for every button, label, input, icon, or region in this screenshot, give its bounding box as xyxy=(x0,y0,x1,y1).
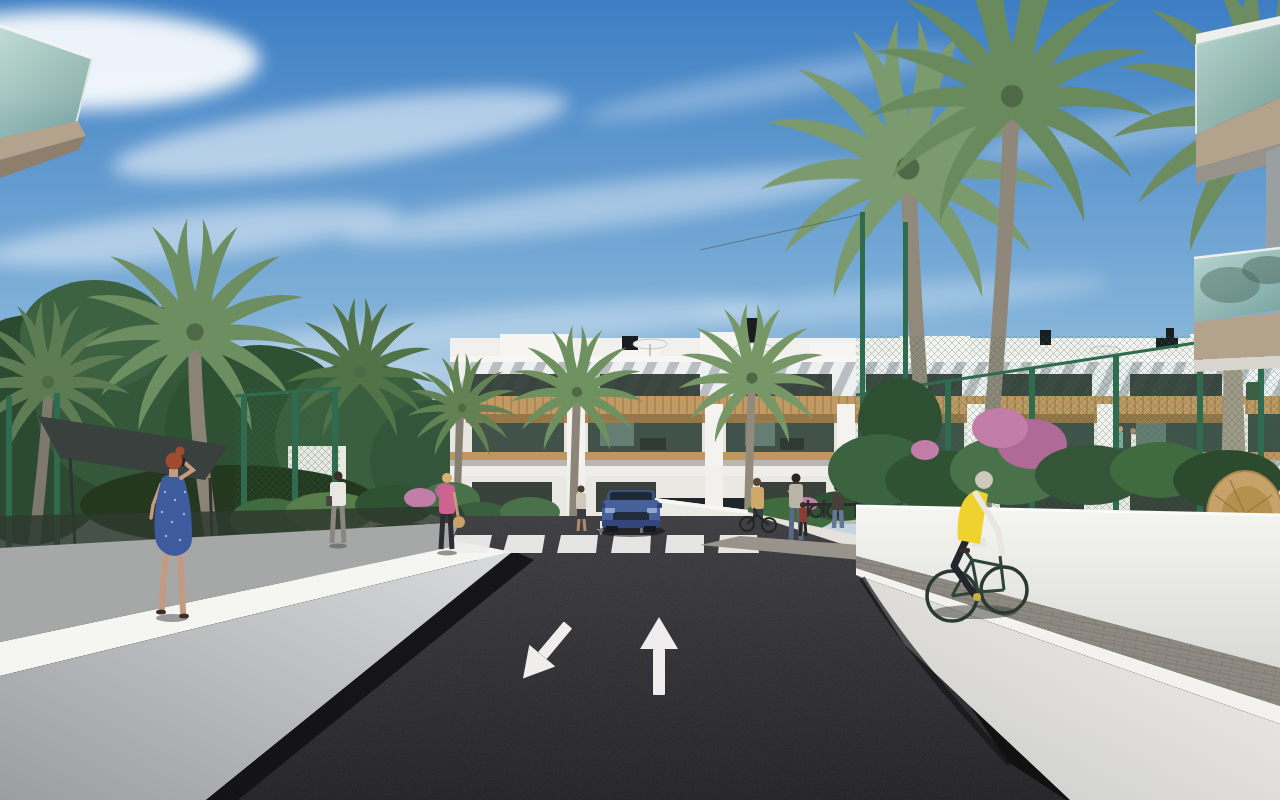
render-stage xyxy=(0,0,1280,800)
blue-suv xyxy=(597,490,665,537)
green-bin xyxy=(1246,382,1260,400)
corner-column xyxy=(1266,146,1280,256)
foreground-balcony-right-lower xyxy=(1194,248,1280,372)
architectural-render xyxy=(0,0,1280,800)
